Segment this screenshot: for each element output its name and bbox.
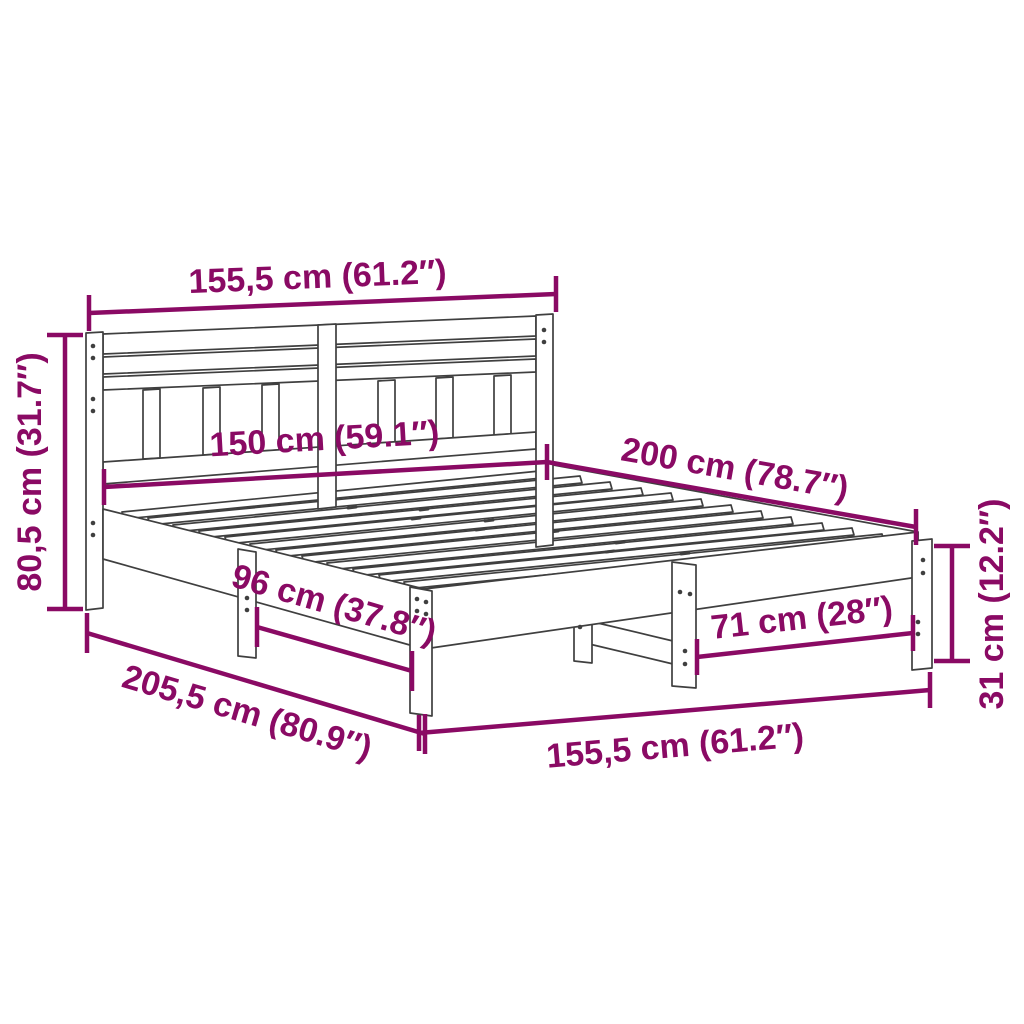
screw-dot [424, 600, 429, 605]
screw-dot [91, 356, 96, 361]
screw-dot [921, 558, 926, 563]
screw-dot [578, 625, 583, 630]
screw-dot [688, 592, 693, 597]
slat-clip-mark [485, 520, 493, 521]
screw-dot [916, 620, 921, 625]
screw-dot [91, 397, 96, 402]
dimension-bed-width: 155,5 cm (61.2″) [419, 672, 930, 776]
screw-dot [91, 533, 96, 538]
slat-clip-mark [606, 551, 614, 552]
slat-clip-mark [476, 529, 484, 530]
headboard-slat [143, 389, 160, 459]
screw-dot [683, 662, 688, 667]
screw-dot [916, 632, 921, 637]
bed-frame-dimension-diagram: 155,5 cm (61.2″) 80,5 cm (31.7″) 150 cm … [0, 0, 1024, 1024]
screw-dot [245, 608, 250, 613]
screw-dot [542, 340, 547, 345]
screw-dot [921, 571, 926, 576]
bed-frame-drawing [86, 314, 932, 716]
headboard-right-post [536, 314, 553, 547]
screw-dot [91, 344, 96, 349]
slat-clip-mark [348, 507, 356, 508]
screw-dot [415, 597, 420, 602]
dimension-label: 155,5 cm (61.2″) [545, 716, 806, 775]
foot-center-leg [672, 562, 696, 688]
screw-dot [678, 590, 683, 595]
dimension-leg-height: 31 cm (12.2″) [934, 499, 1011, 710]
dimension-line [89, 294, 556, 313]
slat-clip-mark [420, 509, 428, 510]
headboard-center-post [318, 324, 336, 509]
center-support-beam [585, 620, 673, 664]
screw-dot [91, 409, 96, 414]
slat-clip-mark [616, 542, 624, 543]
dimension-label: 205,5 cm (80.9″) [118, 658, 376, 768]
diagram-canvas: 155,5 cm (61.2″) 80,5 cm (31.7″) 150 cm … [0, 0, 1024, 1024]
dimension-label: 80,5 cm (31.7″) [11, 352, 49, 591]
dimension-label: 155,5 cm (61.2″) [188, 253, 448, 301]
screw-dot [542, 328, 547, 333]
headboard-left-post [86, 332, 103, 610]
screw-dot [683, 649, 688, 654]
dimension-label: 31 cm (12.2″) [973, 499, 1011, 710]
dimension-headboard-height: 80,5 cm (31.7″) [11, 335, 83, 609]
slat-clip-mark [412, 518, 420, 519]
slat-clip-mark [681, 553, 689, 554]
headboard-slat [494, 375, 511, 435]
screw-dot [91, 521, 96, 526]
